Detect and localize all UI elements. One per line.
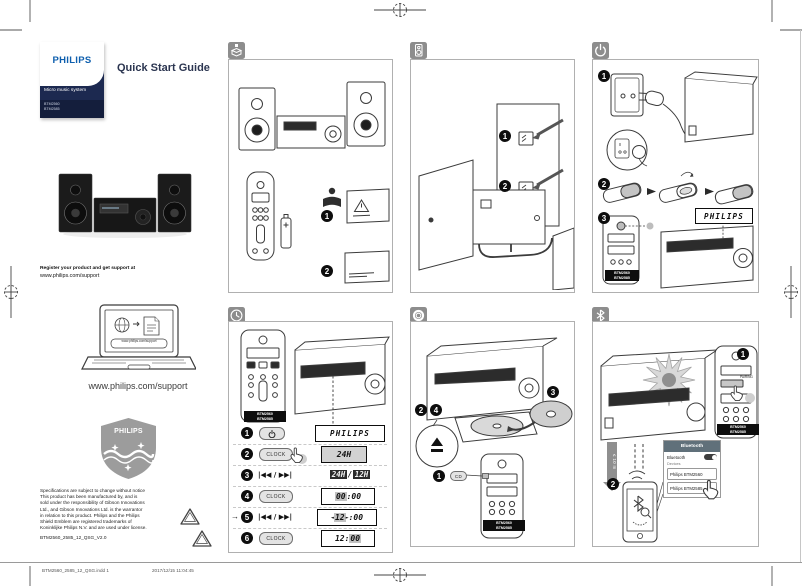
panel-clock: BTM2560 BTM2585 1 PHILIPS 2 CLOCK 24H 3 …	[228, 321, 393, 553]
clock-button: CLOCK	[259, 490, 293, 503]
step-badge: 2	[241, 448, 253, 460]
product-line-label: Micro music system	[40, 88, 104, 93]
display-adjust-hour: ◄ 12 ► : 00	[317, 509, 377, 526]
panel-speaker-connection: 1 2	[410, 59, 575, 293]
step-badge: 1	[499, 130, 511, 142]
right-trim-line	[800, 30, 801, 562]
distance-label: ≤ 10 m	[607, 442, 617, 482]
row-divider	[233, 486, 387, 487]
philips-shield-emblem: PHILIPS	[100, 417, 157, 480]
bottom-trim-line	[0, 562, 802, 563]
row-divider	[233, 528, 387, 529]
registration-mark-left-icon	[0, 264, 22, 320]
guide-title: Quick Start Guide	[117, 62, 210, 74]
remote-model-badge: BTM2560 BTM2585	[717, 424, 759, 435]
step-badge: 2	[321, 265, 333, 277]
display-24h: 24H	[321, 446, 367, 463]
hand-tap-icon	[701, 478, 725, 504]
laptop-screen-url: www.philips.com/support	[111, 339, 167, 343]
model-number-2: BTM2585	[44, 107, 104, 112]
recycle-icon	[178, 506, 218, 554]
step-badge: 2	[415, 404, 427, 416]
step-badge: 1	[321, 210, 333, 222]
step-badge: 2	[598, 178, 610, 190]
clock-button: CLOCK	[259, 532, 293, 545]
print-timestamp: 2017/12/15 11:04:45	[152, 568, 194, 573]
speaker-icon	[410, 42, 427, 59]
repeat-arrow: →	[231, 512, 239, 521]
step-badge: 2	[499, 180, 511, 192]
display-philips: PHILIPS	[315, 425, 385, 442]
unboxing-icon	[228, 42, 245, 59]
step-badge: 2	[607, 478, 619, 490]
standby-button	[259, 427, 285, 440]
step-badge: 1	[737, 348, 749, 360]
step-badge: 5	[241, 511, 253, 523]
row-divider	[233, 507, 387, 508]
model-numbers: BTM2560 BTM2585	[40, 100, 104, 118]
clock-button: CLOCK	[259, 448, 293, 461]
print-filename: BTM2560_2585_12_QSG.indd 1	[42, 568, 109, 573]
step-badge: 3	[598, 212, 610, 224]
register-note: Register your product and get support at	[40, 266, 135, 271]
philips-logo-card: PHILIPS Micro music system BTM2560 BTM25…	[40, 42, 104, 118]
cd-source-button: CD	[450, 471, 467, 481]
registration-mark-top-icon	[352, 0, 448, 22]
display-set-minute: 12 : 00	[321, 530, 375, 547]
product-photo	[57, 170, 193, 240]
legal-text: Specifications are subject to change wit…	[40, 488, 190, 531]
remote-model-badge: BTM2560 BTM2585	[483, 520, 525, 531]
speaker-connection-art	[411, 60, 574, 290]
power-icon	[592, 42, 609, 59]
step-badge: 1	[241, 427, 253, 439]
hand-press-icon	[289, 446, 307, 466]
crop-marks-bottom-icon	[0, 566, 802, 588]
support-url: www.philips.com/support	[55, 381, 221, 391]
remote-model-badge: BTM2560 BTM2585	[244, 411, 286, 422]
step-badge: 4	[430, 404, 442, 416]
display-24h-12h: 24H / 12H	[315, 467, 385, 482]
step-badge: 3	[547, 386, 559, 398]
skip-buttons: |◀◀ / ▶▶|	[258, 471, 292, 479]
philips-logo-white-area: PHILIPS	[40, 42, 104, 86]
remote-model-badge: BTM2560 BTM2585	[605, 270, 639, 281]
crop-mark-top-right-icon	[768, 0, 802, 34]
step-badge: 1	[598, 70, 610, 82]
row-divider	[233, 444, 387, 445]
registration-mark-right-icon	[780, 264, 802, 320]
display-set-hour: 00 : 00	[321, 488, 375, 505]
bluetooth-toggle	[704, 454, 717, 460]
panel-cd: 2 4 3 1 CD BTM2560 BTM2585	[410, 321, 575, 547]
register-url: www.philips.com/support	[40, 273, 99, 279]
unboxing-art	[229, 60, 392, 290]
hand-press-icon	[729, 384, 747, 404]
panel-power: 1 2 3 PHILIPS BTM2560 BTM2585	[592, 59, 759, 293]
cd-art	[411, 322, 574, 544]
shield-icon	[100, 417, 157, 480]
pairing-button-label: PAIRING	[740, 375, 753, 379]
step-badge: 4	[241, 490, 253, 502]
devices-label: Devices	[667, 462, 720, 466]
power-art	[593, 60, 758, 290]
shield-wordmark: PHILIPS	[100, 428, 157, 435]
panel-bluetooth: 1 PAIRING ≤ 10 m 2 Bluetooth Bluetooth D…	[592, 321, 759, 547]
philips-wordmark: PHILIPS	[52, 55, 91, 66]
bluetooth-toggle-label: Bluetooth	[667, 455, 685, 460]
skip-buttons: |◀◀ / ▶▶|	[258, 513, 292, 521]
step-badge: 1	[433, 470, 445, 482]
step-badge: 6	[241, 532, 253, 544]
doc-code: BTM2560_2585_12_QSG_V2.0	[40, 535, 106, 540]
bluetooth-screen-title: Bluetooth	[664, 441, 720, 452]
step-badge: 3	[241, 469, 253, 481]
row-divider	[233, 465, 387, 466]
qsg-page: PHILIPS Micro music system BTM2560 BTM25…	[0, 0, 802, 588]
crop-mark-top-left-icon	[0, 0, 34, 34]
panel-unboxing: 1 2	[228, 59, 393, 293]
display-power-on: PHILIPS	[695, 208, 753, 224]
